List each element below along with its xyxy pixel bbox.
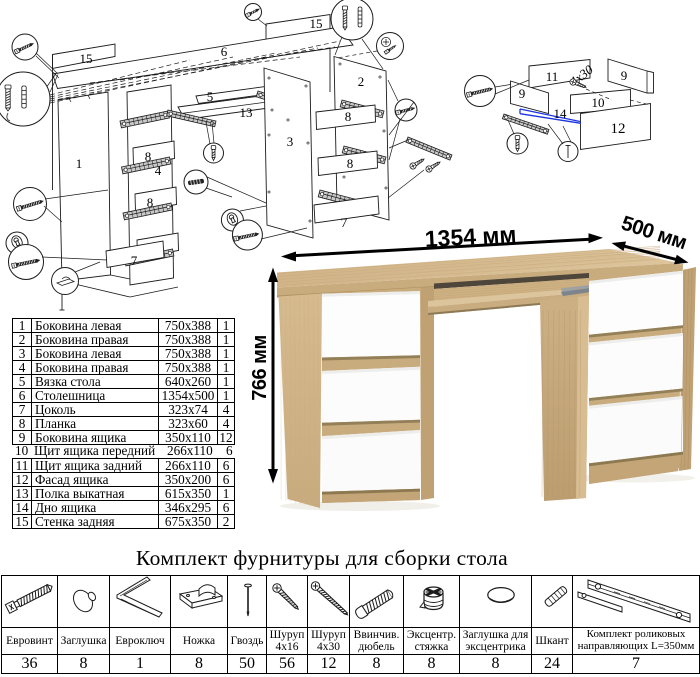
svg-text:10: 10: [592, 95, 605, 110]
svg-text:15: 15: [80, 51, 93, 66]
svg-text:3: 3: [287, 134, 294, 149]
svg-text:8: 8: [345, 109, 352, 124]
svg-text:9: 9: [621, 68, 628, 83]
svg-text:9: 9: [519, 86, 526, 101]
svg-text:8: 8: [347, 156, 354, 171]
svg-text:1: 1: [76, 156, 83, 171]
svg-text:12: 12: [611, 121, 626, 137]
svg-text:7: 7: [131, 253, 138, 268]
svg-text:5: 5: [207, 89, 214, 104]
svg-text:11: 11: [546, 69, 559, 84]
svg-text:14: 14: [554, 106, 568, 121]
svg-text:2: 2: [358, 74, 365, 89]
svg-text:7: 7: [341, 215, 348, 230]
svg-text:766 мм: 766 мм: [249, 335, 271, 401]
svg-text:13: 13: [240, 105, 253, 120]
svg-text:1354 мм: 1354 мм: [424, 221, 517, 252]
svg-text:6: 6: [221, 44, 228, 59]
svg-text:15: 15: [310, 16, 323, 31]
